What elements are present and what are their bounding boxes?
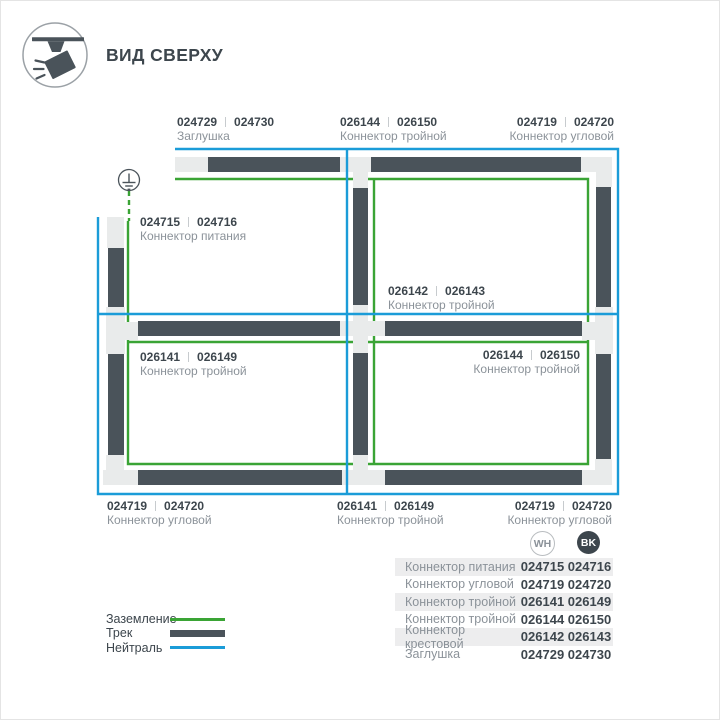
part-name: Коннектор угловой (107, 514, 212, 527)
part-numbers: 024729024730 (177, 116, 274, 129)
part-name: Коннектор тройной (340, 130, 447, 143)
divider (188, 217, 189, 227)
part-name: Коннектор тройной (140, 365, 247, 378)
part-numbers: 026141026149 (140, 351, 247, 364)
part-name: Коннектор питания (140, 230, 246, 243)
earth-ground-icon (119, 170, 140, 191)
part-label-t-top: 026144026150 Коннектор тройной (340, 116, 447, 143)
divider (565, 117, 566, 127)
table-row: Коннектор тройной 026141 026149 (395, 593, 613, 611)
part-label-t-left: 026141026149 Коннектор тройной (140, 351, 247, 378)
parts-table: WH BK Коннектор питания 024715 024716 Ко… (395, 529, 613, 663)
part-name: Коннектор угловой (509, 130, 614, 143)
part-name: Коннектор тройной (337, 514, 444, 527)
part-label-power: 024715024716 Коннектор питания (140, 216, 246, 243)
part-name: Коннектор тройной (473, 363, 580, 376)
part-label-corner-bottom-right: 024719024720 Коннектор угловой (507, 500, 612, 527)
part-label-corner-top-right: 024719024720 Коннектор угловой (509, 116, 614, 143)
part-numbers: 024719024720 (507, 500, 612, 513)
part-label-corner-bottom-left: 024719024720 Коннектор угловой (107, 500, 212, 527)
divider (225, 117, 226, 127)
table-row: Заглушка 024729 024730 (395, 646, 613, 664)
part-name: Коннектор угловой (507, 514, 612, 527)
part-numbers: 026141026149 (337, 500, 444, 513)
ground-line-swatch (170, 618, 225, 621)
part-label-t-bottom: 026141026149 Коннектор тройной (337, 500, 444, 527)
part-numbers: 024719024720 (509, 116, 614, 129)
part-numbers: 024719024720 (107, 500, 212, 513)
neutral-line-swatch (170, 646, 225, 649)
color-badge-black: BK (577, 531, 600, 554)
table-row: Коннектор крестовой 026142 026143 (395, 628, 613, 646)
part-numbers: 026144026150 (340, 116, 447, 129)
part-name: Заглушка (177, 130, 274, 143)
legend: Заземление Трек Нейтраль (106, 612, 225, 655)
part-numbers: 026144026150 (473, 349, 580, 362)
track-bar-swatch (170, 630, 225, 637)
divider (436, 286, 437, 296)
divider (531, 350, 532, 360)
divider (188, 352, 189, 362)
part-label-t-right: 026144026150 Коннектор тройной (473, 349, 580, 376)
divider (388, 117, 389, 127)
divider (155, 501, 156, 511)
divider (563, 501, 564, 511)
part-label-cross-center: 026142026143 Коннектор тройной (388, 285, 495, 312)
table-row: Коннектор угловой 024719 024720 (395, 576, 613, 594)
legend-item-ground: Заземление (106, 612, 225, 626)
divider (385, 501, 386, 511)
part-name: Коннектор тройной (388, 299, 495, 312)
parts-table-header: WH BK (395, 529, 613, 558)
color-badge-white: WH (530, 531, 555, 556)
part-numbers: 024715024716 (140, 216, 246, 229)
part-numbers: 026142026143 (388, 285, 495, 298)
legend-item-neutral: Нейтраль (106, 641, 225, 655)
legend-item-track: Трек (106, 626, 225, 640)
part-label-endcap-top: 024729024730 Заглушка (177, 116, 274, 143)
table-row: Коннектор питания 024715 024716 (395, 558, 613, 576)
